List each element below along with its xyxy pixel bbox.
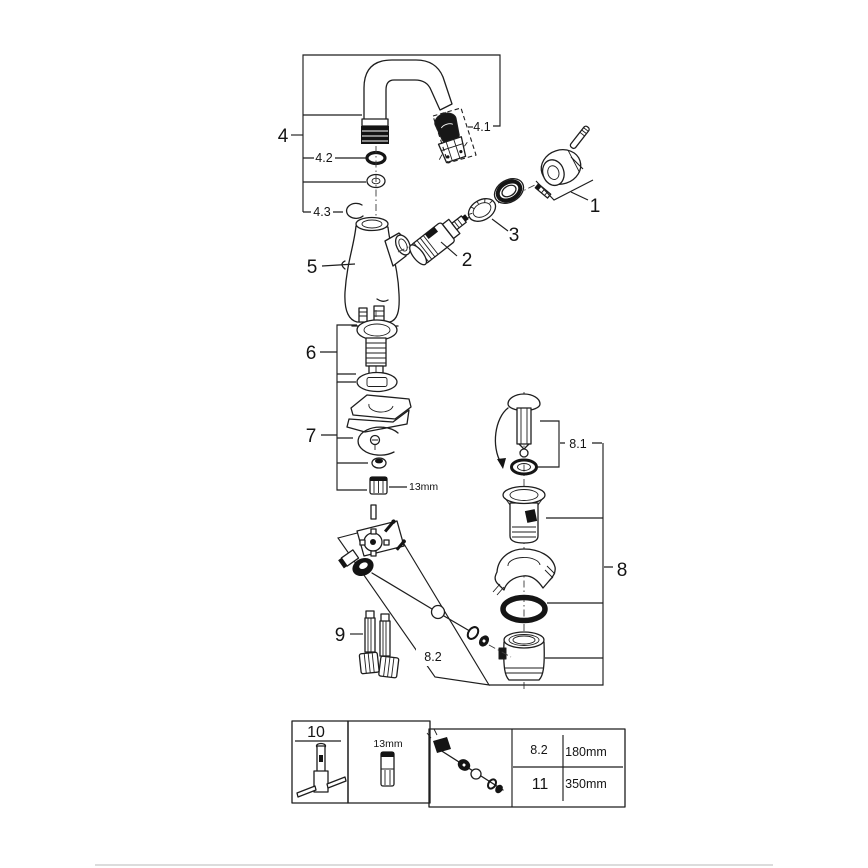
popup-plug — [495, 394, 540, 469]
legend-row1-ref: 8.2 — [530, 743, 547, 757]
pivot-pin — [371, 505, 376, 519]
callout-7: 7 — [306, 426, 317, 447]
faucet-body — [342, 218, 413, 327]
legend-row2-length: 350mm — [565, 777, 607, 791]
callout-4: 4 — [278, 126, 289, 147]
socket-art — [381, 752, 394, 786]
callout-6: 6 — [306, 343, 317, 364]
mounting-tool-art — [297, 744, 346, 798]
callout-8: 8 — [617, 560, 628, 581]
mounting-wedges — [347, 395, 411, 432]
exploded-diagram: 4 4.1 4.2 4.3 5 6 7 2 3 1 8 8.1 8.2 9 13… — [0, 0, 868, 868]
legend-tool-ref: 10 — [307, 724, 325, 741]
callout-9: 9 — [335, 625, 346, 646]
callout-3: 3 — [509, 225, 520, 246]
legend-row2-ref: 11 — [532, 776, 549, 793]
handle — [535, 125, 593, 200]
bracket-6 — [320, 325, 357, 382]
callout-4-3: 4.3 — [313, 205, 330, 219]
supply-hoses — [359, 611, 399, 678]
handle-set-screw — [535, 184, 550, 198]
retaining-clip — [347, 203, 363, 218]
legend-row1-length: 180mm — [565, 745, 607, 759]
exploded-parts-page: 4 4.1 4.2 4.3 5 6 7 2 3 1 8 8.1 8.2 9 13… — [0, 0, 868, 868]
drain-body — [499, 632, 544, 680]
aerator-assembly — [433, 108, 476, 164]
drain-saddle — [493, 549, 555, 595]
shank-nut — [370, 477, 387, 494]
drain-flange — [503, 487, 545, 544]
base-gasket-ring — [357, 373, 397, 392]
callout-8-2: 8.2 — [424, 650, 441, 664]
dome-washer — [372, 458, 386, 468]
legend-table: 10 13mm 8.2 180mm 11 — [292, 721, 625, 807]
callout-2: 2 — [462, 250, 473, 271]
horseshoe-washer — [358, 427, 398, 455]
legend-socket-size: 13mm — [373, 738, 402, 750]
callout-8-1: 8.1 — [569, 437, 586, 451]
leader-3 — [492, 219, 508, 231]
escutcheon-ring — [490, 174, 528, 209]
nut-size-label: 13mm — [409, 481, 438, 493]
callout-4-1: 4.1 — [473, 120, 490, 134]
rod-art — [427, 729, 504, 795]
callout-5: 5 — [307, 257, 318, 278]
callout-1: 1 — [590, 196, 601, 217]
rotate-arrow-head — [497, 458, 506, 469]
rotate-arrow — [495, 408, 508, 463]
callout-4-2: 4.2 — [315, 151, 332, 165]
